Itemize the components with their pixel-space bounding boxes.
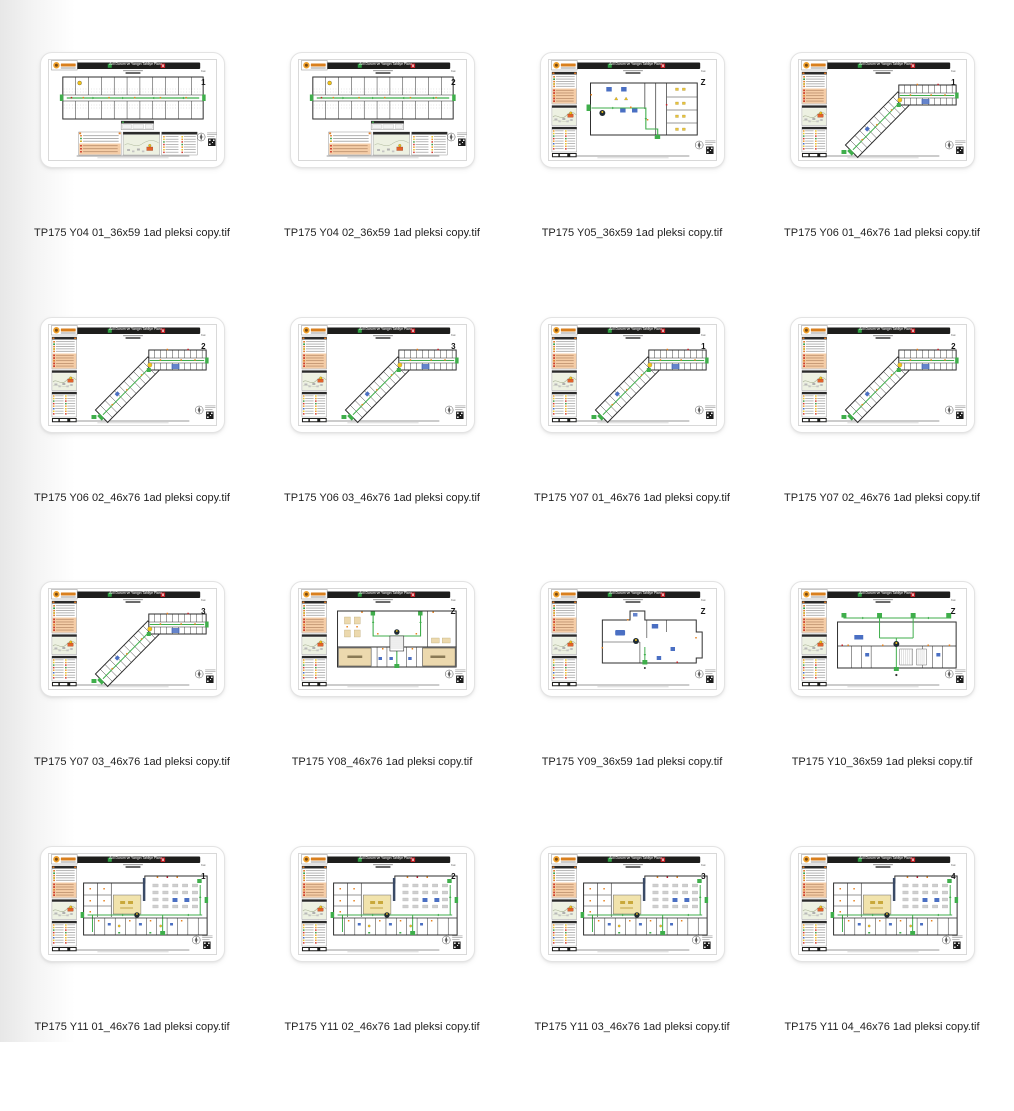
file-thumbnail[interactable]: Acil Durum ve Yangın Tahliye Planı KatZ: [790, 581, 975, 697]
file-item: Acil Durum ve Yangın Tahliye Planı Kat2 …: [7, 317, 257, 582]
file-item: Acil Durum ve Yangın Tahliye Planı Kat2 …: [257, 52, 507, 317]
file-name[interactable]: TP175 Y06 03_46x76 1ad pleksi copy.tif: [284, 492, 480, 505]
file-item: Acil Durum ve Yangın Tahliye Planı KatZ …: [507, 581, 757, 846]
floorplan-preview: [48, 853, 217, 955]
plan-header-title: Acil Durum ve Yangın Tahliye Planı: [608, 326, 662, 333]
plan-header-title: Acil Durum ve Yangın Tahliye Planı: [108, 61, 162, 68]
floor-label: Kat4: [951, 864, 956, 883]
file-thumbnail[interactable]: Acil Durum ve Yangın Tahliye Planı Kat2: [790, 317, 975, 433]
file-name[interactable]: TP175 Y11 04_46x76 1ad pleksi copy.tif: [784, 1021, 979, 1034]
floor-label: Kat3: [201, 599, 206, 618]
floorplan-preview: [798, 853, 967, 955]
file-thumbnail[interactable]: Acil Durum ve Yangın Tahliye Planı Kat2: [290, 52, 475, 168]
file-name[interactable]: TP175 Y07 02_46x76 1ad pleksi copy.tif: [784, 492, 980, 505]
file-name[interactable]: TP175 Y04 02_36x59 1ad pleksi copy.tif: [284, 227, 480, 240]
file-name[interactable]: TP175 Y06 02_46x76 1ad pleksi copy.tif: [34, 492, 230, 505]
file-thumbnail[interactable]: Acil Durum ve Yangın Tahliye Planı Kat1: [540, 317, 725, 433]
plan-header-title: Acil Durum ve Yangın Tahliye Planı: [608, 590, 662, 597]
file-item: Acil Durum ve Yangın Tahliye Planı Kat4 …: [757, 846, 1007, 1111]
floorplan-preview: [298, 324, 467, 426]
floorplan-preview: [798, 59, 967, 161]
file-thumbnail[interactable]: Acil Durum ve Yangın Tahliye Planı Kat1: [40, 52, 225, 168]
floor-label: Kat3: [451, 334, 456, 353]
file-grid: Acil Durum ve Yangın Tahliye Planı Kat1 …: [0, 0, 1014, 1111]
plan-header-title: Acil Durum ve Yangın Tahliye Planı: [608, 61, 662, 68]
file-name[interactable]: TP175 Y09_36x59 1ad pleksi copy.tif: [542, 756, 723, 769]
floorplan-preview: [548, 59, 717, 161]
floorplan-preview: [48, 59, 217, 161]
floor-label: Kat3: [701, 864, 706, 883]
floor-label: Kat2: [451, 864, 456, 883]
floorplan-preview: [548, 588, 717, 690]
floor-label: Kat1: [201, 864, 206, 883]
plan-header-title: Acil Durum ve Yangın Tahliye Planı: [358, 590, 412, 597]
file-name[interactable]: TP175 Y11 02_46x76 1ad pleksi copy.tif: [284, 1021, 479, 1034]
floorplan-preview: [548, 324, 717, 426]
plan-header-title: Acil Durum ve Yangın Tahliye Planı: [358, 61, 412, 68]
file-item: Acil Durum ve Yangın Tahliye Planı Kat3 …: [507, 846, 757, 1111]
floorplan-preview: [48, 588, 217, 690]
plan-header-title: Acil Durum ve Yangın Tahliye Planı: [108, 855, 162, 862]
floor-label: Kat2: [451, 70, 456, 89]
floor-label: Kat1: [701, 334, 706, 353]
plan-header-title: Acil Durum ve Yangın Tahliye Planı: [858, 61, 912, 68]
floorplan-preview: [298, 59, 467, 161]
file-name[interactable]: TP175 Y07 03_46x76 1ad pleksi copy.tif: [34, 756, 230, 769]
file-thumbnail[interactable]: Acil Durum ve Yangın Tahliye Planı KatZ: [290, 581, 475, 697]
floorplan-preview: [298, 588, 467, 690]
file-thumbnail[interactable]: Acil Durum ve Yangın Tahliye Planı KatZ: [540, 581, 725, 697]
floor-label: Kat1: [201, 70, 206, 89]
floor-label: Kat1: [951, 70, 956, 89]
file-name[interactable]: TP175 Y10_36x59 1ad pleksi copy.tif: [792, 756, 973, 769]
floorplan-preview: [798, 588, 967, 690]
file-name[interactable]: TP175 Y08_46x76 1ad pleksi copy.tif: [292, 756, 473, 769]
floorplan-preview: [548, 853, 717, 955]
file-thumbnail[interactable]: Acil Durum ve Yangın Tahliye Planı Kat4: [790, 846, 975, 962]
file-thumbnail[interactable]: Acil Durum ve Yangın Tahliye Planı Kat1: [40, 846, 225, 962]
plan-header-title: Acil Durum ve Yangın Tahliye Planı: [358, 326, 412, 333]
plan-header-title: Acil Durum ve Yangın Tahliye Planı: [108, 590, 162, 597]
floorplan-preview: [798, 324, 967, 426]
floorplan-preview: [298, 853, 467, 955]
floor-label: KatZ: [701, 599, 706, 618]
file-thumbnail[interactable]: Acil Durum ve Yangın Tahliye Planı Kat2: [40, 317, 225, 433]
file-item: Acil Durum ve Yangın Tahliye Planı Kat1 …: [507, 317, 757, 582]
file-item: Acil Durum ve Yangın Tahliye Planı KatZ …: [757, 581, 1007, 846]
file-name[interactable]: TP175 Y11 01_46x76 1ad pleksi copy.tif: [34, 1021, 229, 1034]
file-item: Acil Durum ve Yangın Tahliye Planı Kat3 …: [257, 317, 507, 582]
file-thumbnail[interactable]: Acil Durum ve Yangın Tahliye Planı Kat3: [540, 846, 725, 962]
file-item: Acil Durum ve Yangın Tahliye Planı Kat1 …: [7, 52, 257, 317]
floor-label: Kat2: [201, 334, 206, 353]
file-name[interactable]: TP175 Y07 01_46x76 1ad pleksi copy.tif: [534, 492, 730, 505]
file-thumbnail[interactable]: Acil Durum ve Yangın Tahliye Planı Kat1: [790, 52, 975, 168]
file-item: Acil Durum ve Yangın Tahliye Planı Kat3 …: [7, 581, 257, 846]
file-item: Acil Durum ve Yangın Tahliye Planı Kat2 …: [757, 317, 1007, 582]
file-name[interactable]: TP175 Y04 01_36x59 1ad pleksi copy.tif: [34, 227, 230, 240]
file-thumbnail[interactable]: Acil Durum ve Yangın Tahliye Planı Kat3: [40, 581, 225, 697]
floor-label: Kat2: [951, 334, 956, 353]
plan-header-title: Acil Durum ve Yangın Tahliye Planı: [608, 855, 662, 862]
floor-label: KatZ: [701, 70, 706, 89]
file-thumbnail[interactable]: Acil Durum ve Yangın Tahliye Planı KatZ: [540, 52, 725, 168]
plan-header-title: Acil Durum ve Yangın Tahliye Planı: [358, 855, 412, 862]
plan-header-title: Acil Durum ve Yangın Tahliye Planı: [858, 855, 912, 862]
file-item: Acil Durum ve Yangın Tahliye Planı KatZ …: [257, 581, 507, 846]
file-thumbnail[interactable]: Acil Durum ve Yangın Tahliye Planı Kat3: [290, 317, 475, 433]
file-item: Acil Durum ve Yangın Tahliye Planı KatZ …: [507, 52, 757, 317]
file-name[interactable]: TP175 Y11 03_46x76 1ad pleksi copy.tif: [534, 1021, 729, 1034]
file-name[interactable]: TP175 Y05_36x59 1ad pleksi copy.tif: [542, 227, 723, 240]
plan-header-title: Acil Durum ve Yangın Tahliye Planı: [858, 326, 912, 333]
file-item: Acil Durum ve Yangın Tahliye Planı Kat1 …: [7, 846, 257, 1111]
floor-label: KatZ: [951, 599, 956, 618]
file-item: Acil Durum ve Yangın Tahliye Planı Kat1 …: [757, 52, 1007, 317]
plan-header-title: Acil Durum ve Yangın Tahliye Planı: [108, 326, 162, 333]
file-thumbnail[interactable]: Acil Durum ve Yangın Tahliye Planı Kat2: [290, 846, 475, 962]
floorplan-preview: [48, 324, 217, 426]
plan-header-title: Acil Durum ve Yangın Tahliye Planı: [858, 590, 912, 597]
file-name[interactable]: TP175 Y06 01_46x76 1ad pleksi copy.tif: [784, 227, 980, 240]
floor-label: KatZ: [451, 599, 456, 618]
file-item: Acil Durum ve Yangın Tahliye Planı Kat2 …: [257, 846, 507, 1111]
